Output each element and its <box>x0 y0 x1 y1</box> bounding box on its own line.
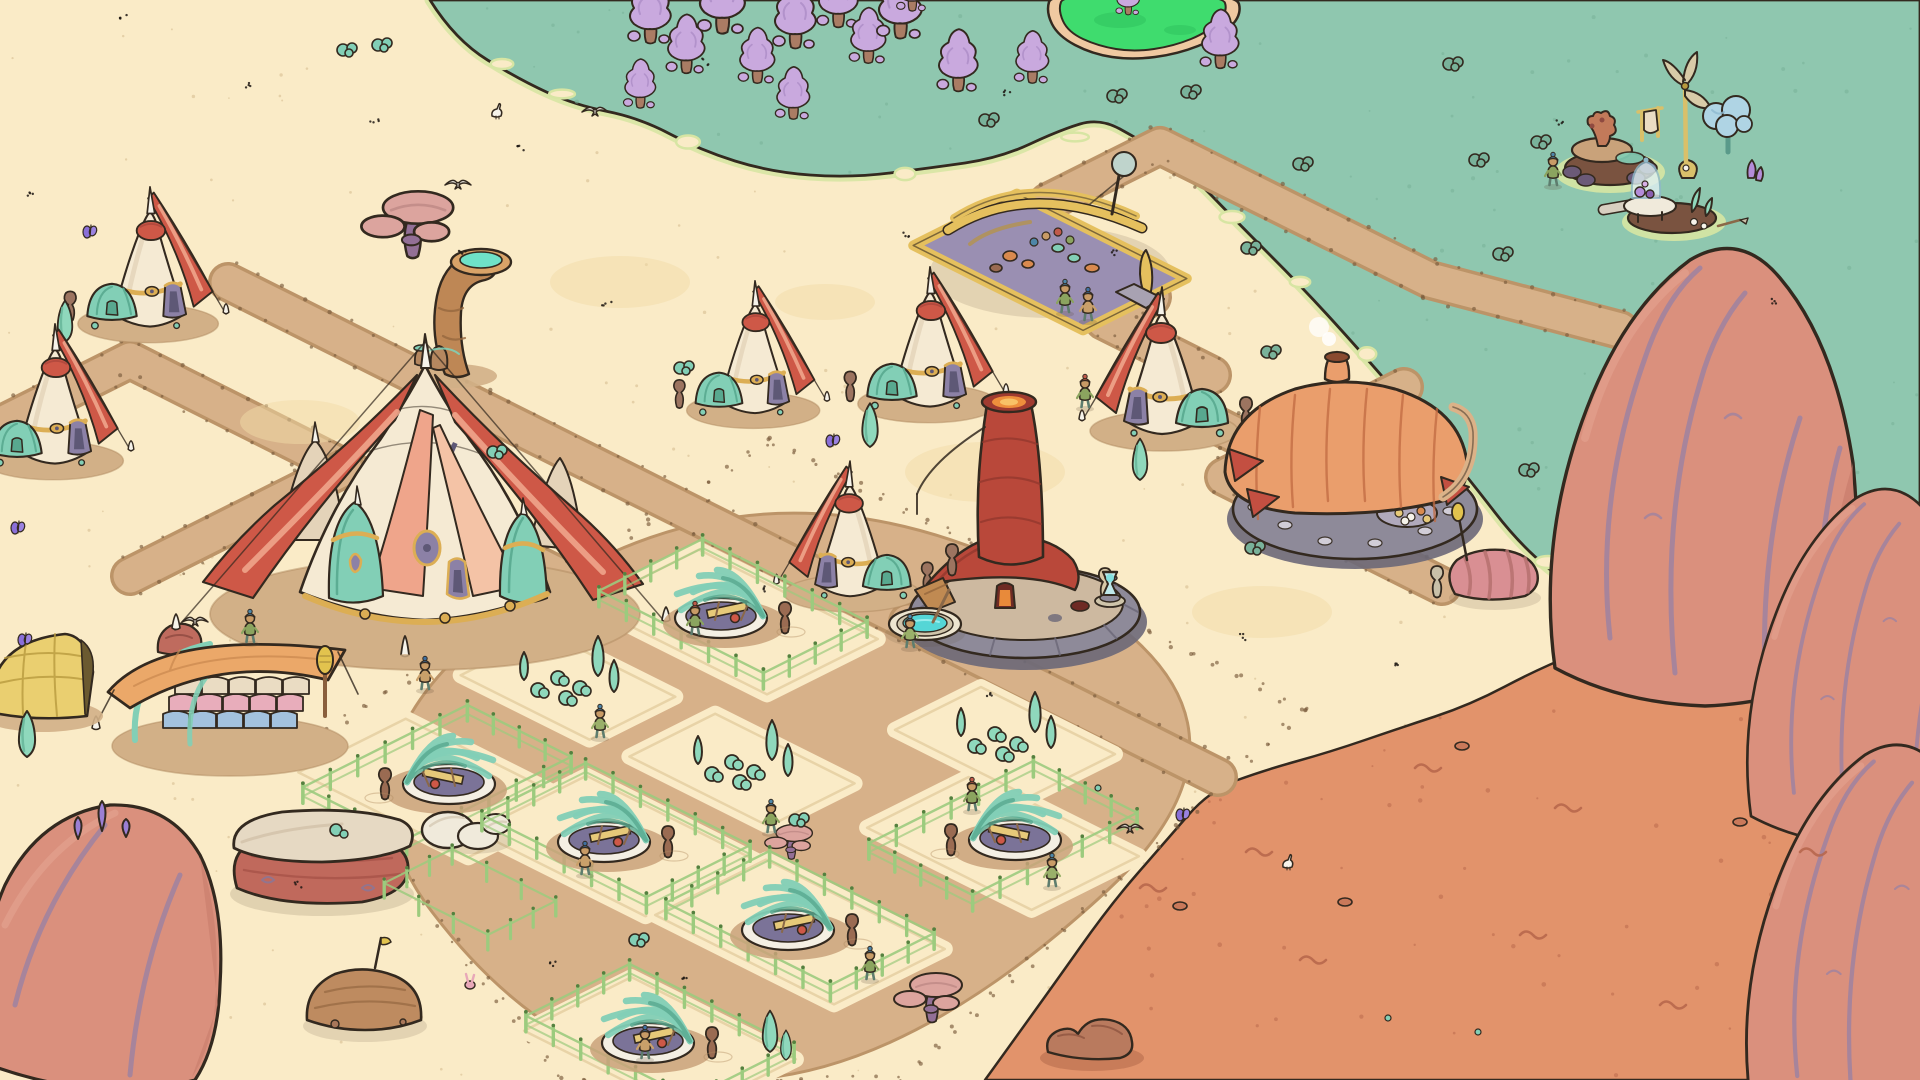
ground-sprout <box>1475 1029 1481 1035</box>
game-world-canvas[interactable] <box>0 0 1920 1080</box>
sand-patch <box>1192 586 1332 638</box>
pebble <box>1733 818 1747 826</box>
sand-patch <box>550 256 690 308</box>
purple-tree[interactable] <box>773 0 816 49</box>
game-viewport[interactable] <box>0 0 1920 1080</box>
pebble <box>1338 898 1352 906</box>
mesa-rock[interactable] <box>230 810 414 916</box>
purple-tree[interactable] <box>628 0 671 44</box>
sand-patch <box>775 284 875 320</box>
red-rock-formation[interactable] <box>0 801 221 1080</box>
pebble <box>1173 902 1187 910</box>
pebble <box>1455 742 1469 750</box>
ground-sprout <box>1095 785 1101 791</box>
ground-sprout <box>1385 1015 1391 1021</box>
